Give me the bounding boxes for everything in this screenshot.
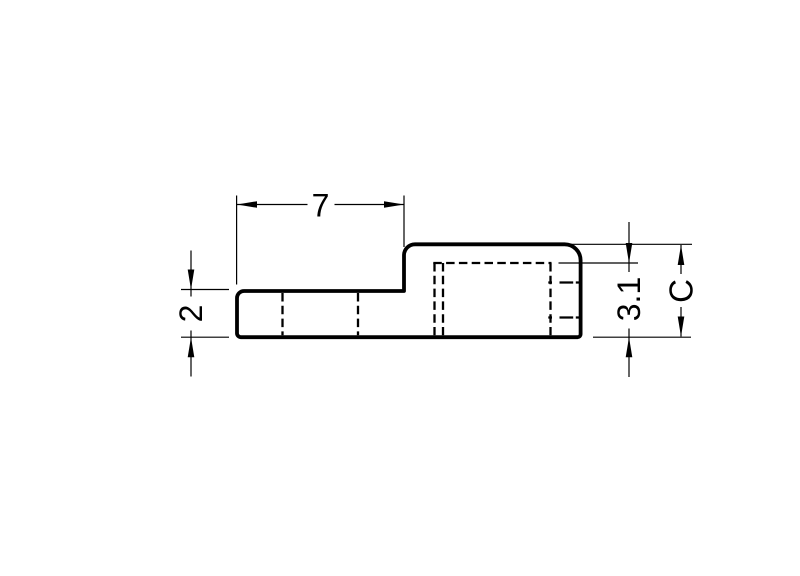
svg-text:C: C [663, 279, 700, 303]
svg-text:2: 2 [173, 305, 209, 323]
svg-text:7: 7 [312, 188, 330, 224]
svg-text:3.1: 3.1 [611, 277, 647, 321]
